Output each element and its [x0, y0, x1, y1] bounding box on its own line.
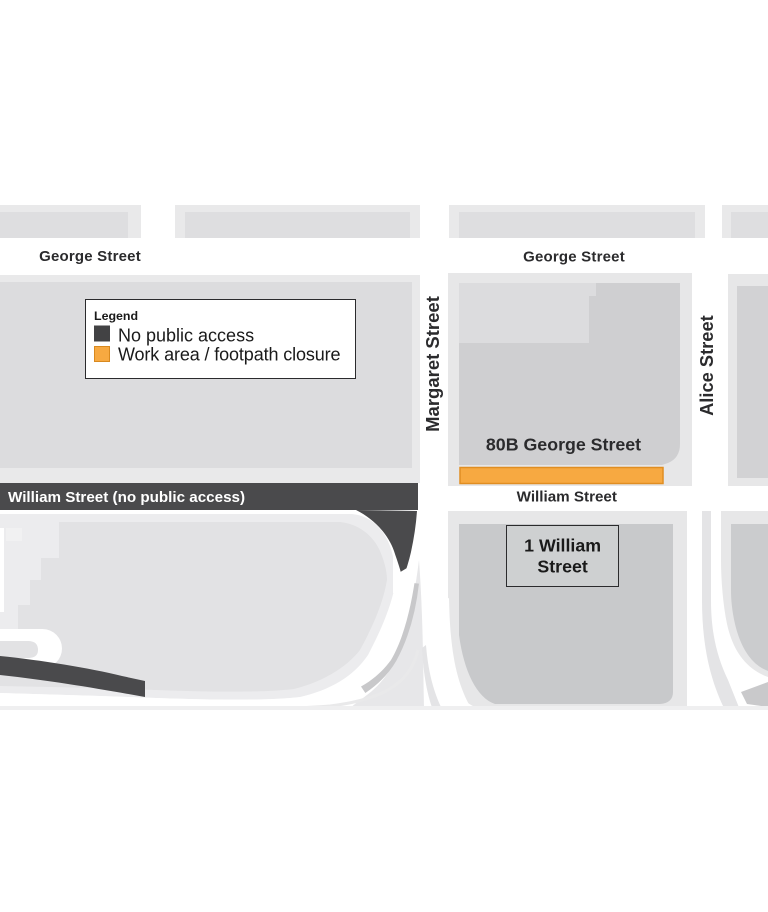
- svg-text:George Street: George Street: [523, 249, 625, 266]
- svg-text:William Street (no public acce: William Street (no public access): [8, 489, 245, 506]
- svg-text:George Street: George Street: [39, 248, 141, 265]
- svg-text:Work area / footpath closure: Work area / footpath closure: [118, 345, 341, 365]
- svg-text:Margaret Street: Margaret Street: [422, 296, 443, 432]
- svg-text:Alice Street: Alice Street: [696, 315, 717, 416]
- svg-text:Legend: Legend: [94, 309, 138, 323]
- svg-text:1 William: 1 William: [524, 536, 601, 556]
- svg-text:Street: Street: [537, 557, 587, 577]
- svg-text:80B George Street: 80B George Street: [486, 435, 641, 455]
- svg-text:No public access: No public access: [118, 326, 254, 346]
- svg-text:William Street: William Street: [517, 489, 617, 506]
